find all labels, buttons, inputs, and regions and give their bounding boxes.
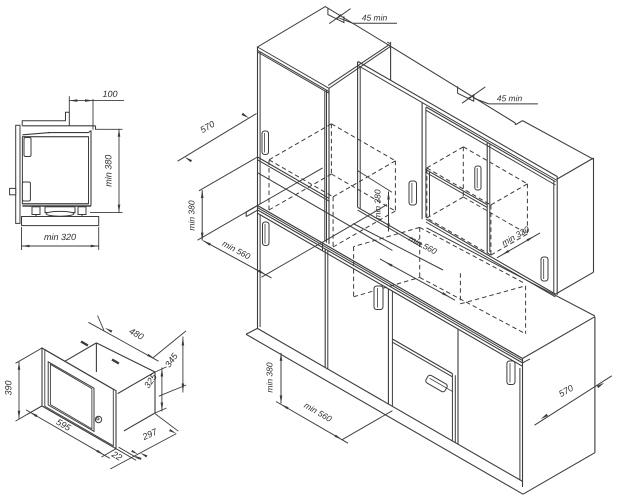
svg-text:min 380: min 380 — [265, 362, 275, 393]
svg-text:min 320: min 320 — [44, 232, 76, 242]
svg-text:min 380: min 380 — [187, 200, 197, 231]
svg-text:45 min: 45 min — [362, 13, 388, 23]
svg-text:100: 100 — [102, 89, 117, 99]
svg-text:min 380: min 380 — [372, 189, 382, 220]
svg-text:45 min: 45 min — [497, 93, 523, 103]
svg-text:390: 390 — [4, 380, 14, 395]
svg-text:min 380: min 380 — [104, 155, 114, 187]
